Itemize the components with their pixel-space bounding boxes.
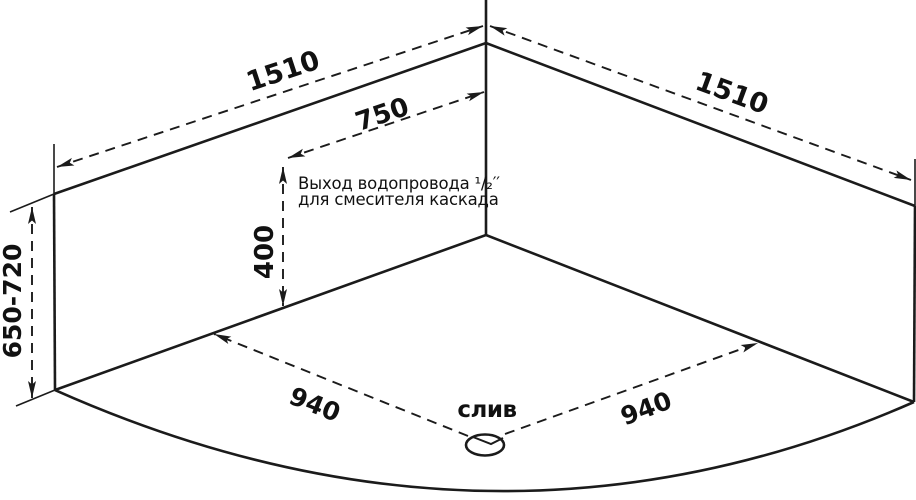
bathtub-dimension-diagram: 1510 1510 750 400 650-720 940 940 слив В…	[0, 0, 916, 500]
left-wall-edge	[54, 194, 55, 390]
diagram-canvas: 1510 1510 750 400 650-720 940 940 слив В…	[0, 0, 916, 500]
dim-label-outlet-height: 400	[250, 225, 280, 279]
right-wall-edge	[914, 206, 915, 402]
dim-label-rim-left: 1510	[243, 45, 324, 98]
dim-label-drain-left: 940	[285, 381, 344, 427]
left-lower-corner-extension-line	[16, 390, 55, 406]
dim-line-rim-right	[490, 26, 911, 180]
dim-line-rim-left	[57, 26, 483, 167]
drain-symbol	[466, 435, 504, 456]
dim-label-rim-right: 1510	[691, 66, 772, 121]
dimension-lines	[32, 26, 911, 436]
dim-line-drain-left	[214, 334, 468, 436]
floor-edges	[55, 235, 914, 402]
drain-ellipse	[466, 435, 504, 456]
outlet-note-line2: для смесителя каскада	[298, 190, 499, 209]
dim-label-install-height: 650-720	[0, 244, 27, 359]
drain-label: слив	[457, 397, 516, 423]
dim-label-outlet-offset: 750	[352, 92, 413, 138]
dim-label-drain-right: 940	[617, 386, 676, 431]
